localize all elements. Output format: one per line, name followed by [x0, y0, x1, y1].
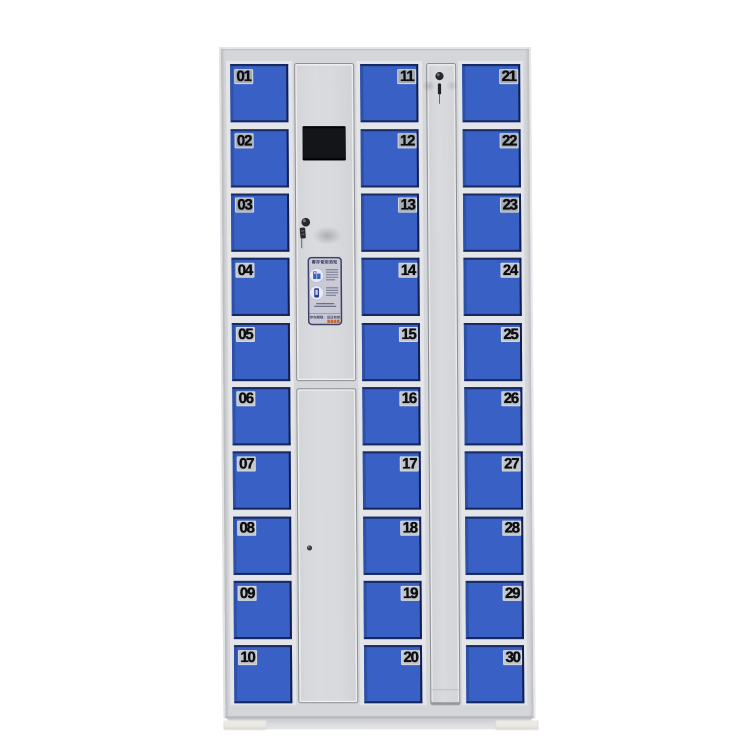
svg-text:存包期限：当日有效: 存包期限：当日有效 — [309, 314, 341, 319]
svg-text:寄存使用须知: 寄存使用须知 — [312, 258, 338, 264]
